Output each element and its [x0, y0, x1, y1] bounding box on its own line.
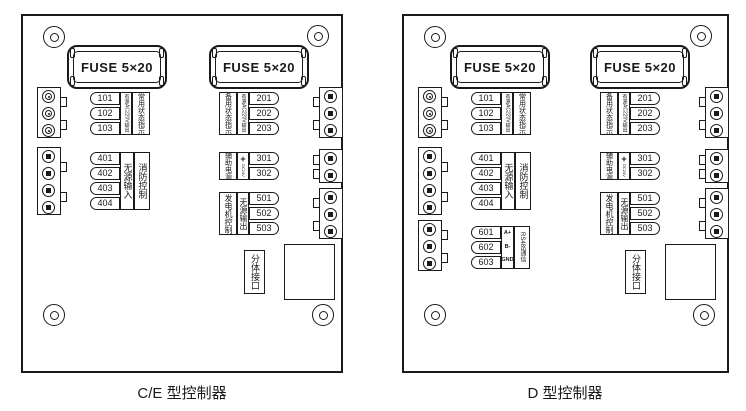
- connector-pin: [423, 124, 436, 137]
- caption-ce-controller: C/E 型控制器: [137, 382, 226, 403]
- mounting-hole: [424, 304, 446, 326]
- pin-contact: [328, 173, 333, 178]
- pin-contact: [427, 188, 432, 193]
- pin-ring: [426, 93, 433, 100]
- function-label: 常用状态指示: [138, 93, 145, 135]
- terminal-302: 302: [630, 167, 660, 180]
- function-label: 备用状态指示: [606, 93, 613, 135]
- connector-pin: [423, 150, 436, 163]
- connector-pin: [710, 124, 723, 137]
- connector-pin: [324, 169, 337, 182]
- terminal-101: 101: [90, 92, 120, 105]
- connector-tab: [60, 162, 67, 172]
- terminal-connector: [37, 87, 61, 138]
- mounting-hole: [693, 304, 715, 326]
- terminal-103: 103: [471, 122, 501, 135]
- connector-tab: [699, 198, 706, 208]
- function-label-box: 有源AC220V输出: [120, 92, 132, 135]
- mounting-hole-inner: [431, 311, 440, 320]
- pin-contact: [714, 156, 719, 161]
- connector-pin: [324, 152, 337, 165]
- fuse-holder: FUSE 5×20: [209, 45, 309, 89]
- mounting-hole: [424, 26, 446, 48]
- fuse-window: FUSE 5×20: [73, 51, 161, 83]
- function-label-box: 消防控制: [134, 152, 150, 210]
- function-label: 常用状态指示: [519, 93, 526, 135]
- fuse-window: FUSE 5×20: [456, 51, 544, 83]
- terminal-101: 101: [471, 92, 501, 105]
- terminal-connector: [705, 188, 729, 239]
- mounting-hole: [307, 25, 329, 47]
- function-label: 消防控制: [519, 163, 528, 199]
- pin-dot: [48, 130, 50, 132]
- connector-pin: [710, 107, 723, 120]
- fuse-window: FUSE 5×20: [596, 51, 684, 83]
- connector-tab: [441, 230, 448, 240]
- terminal-connector: [418, 220, 442, 271]
- function-label: 无源输入: [123, 163, 132, 199]
- terminal-102: 102: [471, 107, 501, 120]
- pin-contact: [427, 171, 432, 176]
- split-interface-label: 分体接口: [250, 254, 259, 290]
- connector-pin: [324, 107, 337, 120]
- terminal-301: 301: [630, 152, 660, 165]
- pin-contact: [427, 154, 432, 159]
- mounting-hole-inner: [697, 32, 706, 41]
- pin-contact: [427, 205, 432, 210]
- pin-dot: [429, 96, 431, 98]
- connector-tab: [699, 155, 706, 165]
- function-label-box: 无源输入: [501, 152, 515, 210]
- function-label: 备用状态指示: [225, 93, 232, 135]
- function-label-box: 常用状态指示: [132, 92, 150, 135]
- terminal-403: 403: [90, 182, 120, 195]
- terminal-201: 201: [249, 92, 279, 105]
- terminal-connector: [37, 147, 61, 215]
- function-label-box: 有源AC220V输出: [237, 92, 249, 135]
- connector-tab: [699, 221, 706, 231]
- function-label: 有源AC220V输出: [505, 94, 510, 133]
- pin-ring: [45, 110, 52, 117]
- connector-pin: [423, 184, 436, 197]
- fuse-label: FUSE 5×20: [604, 60, 676, 75]
- function-label-box: 辅助电源: [219, 152, 237, 180]
- pin-contact: [328, 212, 333, 217]
- fuse-holder: FUSE 5×20: [590, 45, 690, 89]
- connector-pin: [324, 90, 337, 103]
- connector-pin: [324, 208, 337, 221]
- mounting-hole: [312, 304, 334, 326]
- terminal-203: 203: [630, 122, 660, 135]
- function-label: RS485通信: [519, 232, 525, 262]
- mounting-hole-inner: [431, 33, 440, 42]
- serial-pin-name: GND: [501, 258, 513, 264]
- terminal-302: 302: [249, 167, 279, 180]
- connector-pin: [423, 201, 436, 214]
- terminal-connector: [319, 188, 343, 239]
- split-interface-label: 分体接口: [631, 254, 640, 290]
- pin-ring: [45, 93, 52, 100]
- pin-contact: [714, 94, 719, 99]
- mounting-hole-inner: [50, 33, 59, 42]
- connector-tab: [313, 120, 320, 130]
- plus-sign: +: [240, 155, 245, 164]
- connector-pin: [42, 167, 55, 180]
- terminal-404: 404: [90, 197, 120, 210]
- function-label: 发电机控制: [224, 194, 232, 234]
- terminal-502: 502: [630, 207, 660, 220]
- terminal-401: 401: [471, 152, 501, 165]
- connector-tab: [441, 253, 448, 263]
- connector-pin: [710, 208, 723, 221]
- minus-sign: −: [621, 177, 626, 180]
- mounting-hole-inner: [700, 311, 709, 320]
- terminal-connector: [418, 87, 442, 138]
- function-label-box: 有源AC220V输出: [618, 92, 630, 135]
- connector-tab: [441, 120, 448, 130]
- mounting-hole-inner: [314, 32, 323, 41]
- pin-contact: [328, 229, 333, 234]
- pin-contact: [328, 195, 333, 200]
- function-label: 无源输出: [620, 198, 628, 230]
- pin-contact: [714, 195, 719, 200]
- pin-dot: [429, 130, 431, 132]
- fuse-label: FUSE 5×20: [464, 60, 536, 75]
- function-label: 辅助电源: [225, 152, 232, 180]
- pin-dot: [48, 96, 50, 98]
- mounting-hole-inner: [319, 311, 328, 320]
- pin-ring: [426, 110, 433, 117]
- blank-module: [665, 244, 716, 300]
- connector-tab: [441, 162, 448, 172]
- terminal-501: 501: [249, 192, 279, 205]
- controller-board-ce: FUSE 5×20 FUSE 5×20 分体接口 101102103有源AC22…: [21, 14, 343, 373]
- function-label: 辅助电源: [606, 152, 613, 180]
- function-label-box: 发电机控制: [219, 192, 237, 235]
- pin-contact: [328, 94, 333, 99]
- terminal-102: 102: [90, 107, 120, 120]
- function-label-box: +DC24V−: [618, 152, 630, 180]
- pin-contact: [714, 128, 719, 133]
- caption-d-controller: D 型控制器: [527, 382, 602, 403]
- controller-board-d: FUSE 5×20 FUSE 5×20 分体接口 101102103有源AC22…: [402, 14, 729, 373]
- terminal-502: 502: [249, 207, 279, 220]
- pin-dot: [48, 113, 50, 115]
- terminal-501: 501: [630, 192, 660, 205]
- connector-tab: [313, 97, 320, 107]
- fuse-label: FUSE 5×20: [81, 60, 153, 75]
- connector-pin: [423, 240, 436, 253]
- terminal-connector: [319, 149, 343, 183]
- connector-tab: [313, 221, 320, 231]
- mounting-hole: [43, 26, 65, 48]
- connector-tab: [441, 192, 448, 202]
- pin-contact: [714, 111, 719, 116]
- terminal-403: 403: [471, 182, 501, 195]
- connector-pin: [423, 167, 436, 180]
- connector-tab: [60, 97, 67, 107]
- pin-contact: [46, 154, 51, 159]
- terminal-301: 301: [249, 152, 279, 165]
- pin-ring: [45, 127, 52, 134]
- split-interface-box: 分体接口: [625, 250, 646, 294]
- connector-pin: [324, 225, 337, 238]
- terminal-202: 202: [249, 107, 279, 120]
- terminal-503: 503: [630, 222, 660, 235]
- fuse-window: FUSE 5×20: [215, 51, 303, 83]
- function-label-box: 无源输出: [618, 192, 630, 235]
- pin-contact: [328, 128, 333, 133]
- connector-tab: [60, 120, 67, 130]
- function-label: 无源输出: [239, 198, 247, 230]
- fuse-holder: FUSE 5×20: [67, 45, 167, 89]
- connector-tab: [313, 198, 320, 208]
- terminal-103: 103: [90, 122, 120, 135]
- fuse-holder: FUSE 5×20: [450, 45, 550, 89]
- connector-tab: [313, 169, 320, 179]
- terminal-603: 603: [471, 256, 501, 269]
- pin-ring: [426, 127, 433, 134]
- function-label: 消防控制: [138, 163, 147, 199]
- pin-contact: [46, 171, 51, 176]
- connector-tab: [313, 155, 320, 165]
- function-label-box: 发电机控制: [600, 192, 618, 235]
- pin-contact: [328, 111, 333, 116]
- terminal-connector: [705, 87, 729, 138]
- connector-pin: [710, 90, 723, 103]
- connector-pin: [42, 201, 55, 214]
- minus-sign: −: [240, 177, 245, 180]
- connector-tab: [699, 169, 706, 179]
- pin-contact: [427, 244, 432, 249]
- function-label-box: 消防控制: [515, 152, 531, 210]
- connector-pin: [710, 169, 723, 182]
- mounting-hole: [690, 25, 712, 47]
- pin-contact: [46, 188, 51, 193]
- connector-pin: [42, 150, 55, 163]
- terminal-201: 201: [630, 92, 660, 105]
- pin-contact: [427, 227, 432, 232]
- terminal-402: 402: [471, 167, 501, 180]
- connector-pin: [423, 107, 436, 120]
- pin-contact: [46, 205, 51, 210]
- terminal-602: 602: [471, 241, 501, 254]
- function-label: 有源AC220V输出: [241, 94, 246, 133]
- function-label-box: A+B-GND: [501, 226, 514, 269]
- terminal-connector: [319, 87, 343, 138]
- mounting-hole: [43, 304, 65, 326]
- dc24v-label: DC24V: [622, 164, 626, 177]
- connector-pin: [423, 257, 436, 270]
- function-label: 发电机控制: [605, 194, 613, 234]
- serial-pin-name: A+: [504, 231, 511, 237]
- fuse-label: FUSE 5×20: [223, 60, 295, 75]
- function-label: 有源AC220V输出: [622, 94, 627, 133]
- function-label-box: 辅助电源: [600, 152, 618, 180]
- terminal-404: 404: [471, 197, 501, 210]
- pin-dot: [429, 113, 431, 115]
- function-label-box: 常用状态指示: [513, 92, 531, 135]
- connector-pin: [423, 223, 436, 236]
- connector-pin: [710, 191, 723, 204]
- function-label-box: RS485通信: [514, 226, 530, 269]
- connector-tab: [699, 120, 706, 130]
- terminal-401: 401: [90, 152, 120, 165]
- terminal-connector: [418, 147, 442, 215]
- function-label-box: 有源AC220V输出: [501, 92, 513, 135]
- connector-pin: [42, 107, 55, 120]
- mounting-hole-inner: [50, 311, 59, 320]
- wiring-diagram-canvas: FUSE 5×20 FUSE 5×20 分体接口 101102103有源AC22…: [0, 0, 746, 411]
- connector-pin: [42, 184, 55, 197]
- terminal-601: 601: [471, 226, 501, 239]
- function-label-box: 无源输入: [120, 152, 134, 210]
- connector-pin: [324, 191, 337, 204]
- pin-contact: [714, 229, 719, 234]
- split-interface-box: 分体接口: [244, 250, 265, 294]
- connector-tab: [699, 97, 706, 107]
- pin-contact: [714, 212, 719, 217]
- connector-tab: [60, 192, 67, 202]
- blank-module: [284, 244, 335, 300]
- connector-pin: [710, 225, 723, 238]
- terminal-402: 402: [90, 167, 120, 180]
- plus-sign: +: [621, 155, 626, 164]
- connector-pin: [423, 90, 436, 103]
- serial-pin-name: B-: [505, 245, 511, 251]
- connector-pin: [710, 152, 723, 165]
- pin-contact: [714, 173, 719, 178]
- function-label-box: +DC24V−: [237, 152, 249, 180]
- function-label-box: 备用状态指示: [219, 92, 237, 135]
- terminal-203: 203: [249, 122, 279, 135]
- terminal-connector: [705, 149, 729, 183]
- connector-pin: [42, 124, 55, 137]
- pin-contact: [328, 156, 333, 161]
- connector-tab: [441, 97, 448, 107]
- terminal-503: 503: [249, 222, 279, 235]
- pin-contact: [427, 261, 432, 266]
- function-label: 无源输入: [504, 163, 513, 199]
- function-label-box: 备用状态指示: [600, 92, 618, 135]
- dc24v-label: DC24V: [241, 164, 245, 177]
- connector-pin: [324, 124, 337, 137]
- function-label-box: 无源输出: [237, 192, 249, 235]
- connector-pin: [42, 90, 55, 103]
- terminal-202: 202: [630, 107, 660, 120]
- function-label: 有源AC220V输出: [124, 94, 129, 133]
